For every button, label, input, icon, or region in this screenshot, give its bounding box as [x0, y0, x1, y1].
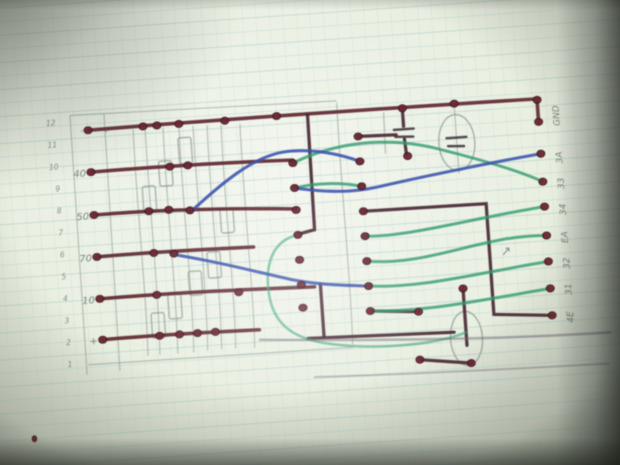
photo-of-schematic: 121110987654321·40507010+GND3A3334EA3231… [0, 0, 620, 465]
bottom-edge-shadow [0, 438, 620, 465]
corner-shadow [0, 0, 240, 190]
top-edge-shadow [0, 0, 620, 10]
right-edge-shadow [556, 0, 620, 465]
schematic-photo-canvas: 121110987654321·40507010+GND3A3334EA3231… [0, 0, 620, 465]
